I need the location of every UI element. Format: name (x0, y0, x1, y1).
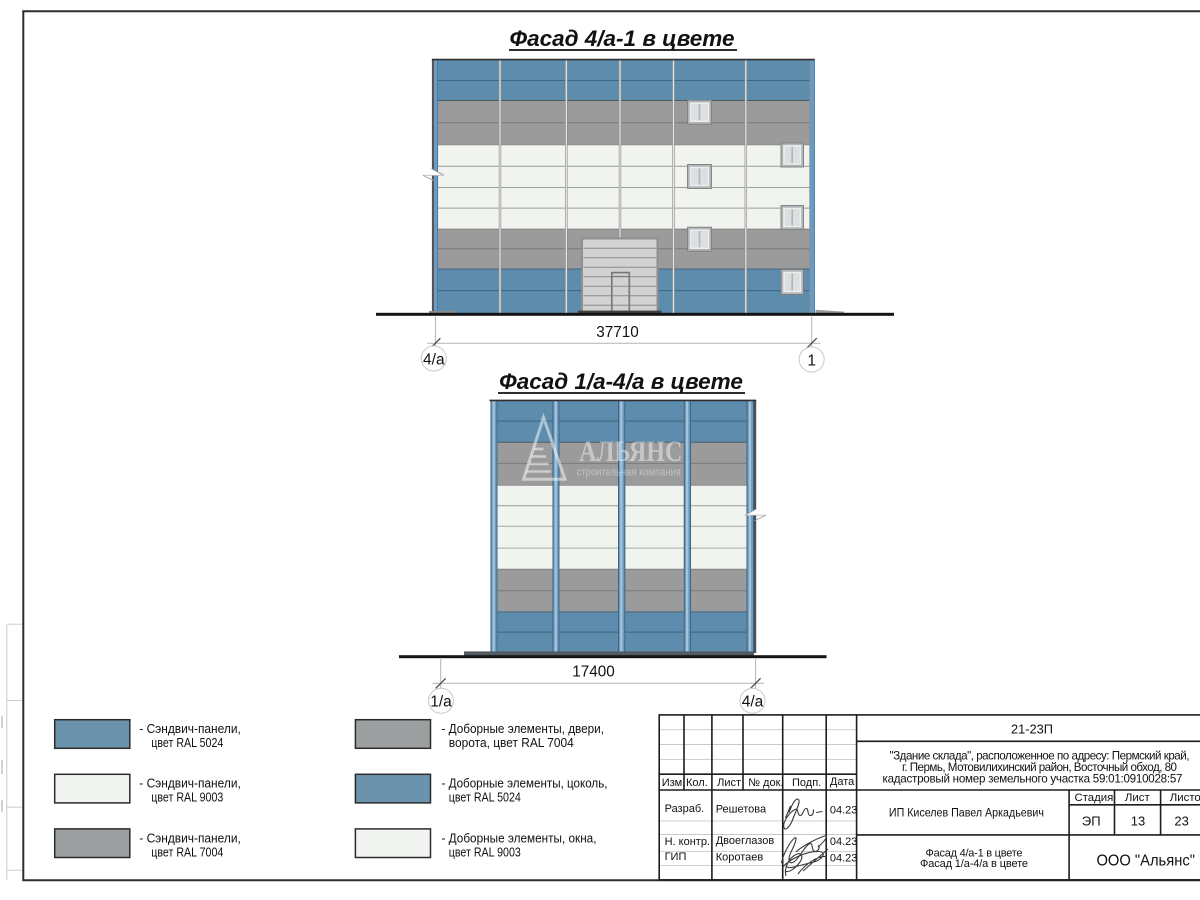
svg-text:цвет RAL 9003: цвет RAL 9003 (151, 790, 223, 805)
svg-text:13: 13 (1131, 813, 1145, 828)
svg-text:Решетова: Решетова (716, 804, 767, 816)
svg-text:цвет RAL 5024: цвет RAL 5024 (449, 790, 521, 805)
svg-text:Подп.: Подп. (792, 777, 821, 789)
svg-text:цвет RAL 5024: цвет RAL 5024 (151, 735, 223, 750)
svg-text:Фасад 1/а-4/а в цвете: Фасад 1/а-4/а в цвете (920, 858, 1028, 870)
svg-text:ГИП: ГИП (665, 851, 687, 863)
svg-text:ИП Киселев Павел Аркадьевич: ИП Киселев Павел Аркадьевич (889, 808, 1044, 820)
svg-text:ЭП: ЭП (1082, 813, 1101, 828)
svg-text:04.23: 04.23 (830, 836, 858, 848)
svg-text:04.23: 04.23 (830, 805, 858, 817)
svg-text:Разраб.: Разраб. (665, 803, 705, 815)
svg-text:Дата: Дата (830, 776, 855, 788)
svg-text:Кол.: Кол. (686, 777, 708, 789)
svg-text:- Доборные элементы, окна,: - Доборные элементы, окна, (442, 830, 597, 845)
svg-text:Стадия: Стадия (1074, 792, 1113, 804)
svg-text:1/а: 1/а (430, 694, 452, 711)
svg-text:Фасад 4/а-1 в цвете: Фасад 4/а-1 в цвете (510, 26, 735, 51)
svg-text:кадастровый номер земельного у: кадастровый номер земельного участка 59:… (883, 773, 1183, 786)
svg-text:Фасад 1/а-4/а в цвете: Фасад 1/а-4/а в цвете (499, 369, 743, 394)
svg-text:4/а: 4/а (742, 694, 764, 711)
svg-text:17400: 17400 (572, 664, 615, 681)
svg-text:- Доборные элементы, цоколь,: - Доборные элементы, цоколь, (442, 776, 608, 791)
svg-text:строительная компания: строительная компания (577, 467, 681, 479)
svg-text:Листов: Листов (1170, 792, 1200, 804)
svg-text:цвет RAL 7004: цвет RAL 7004 (151, 844, 223, 859)
svg-text:Изм.: Изм. (662, 777, 686, 789)
svg-text:Коротаев: Коротаев (716, 851, 764, 863)
svg-text:Н. контр.: Н. контр. (665, 836, 710, 848)
svg-text:37710: 37710 (596, 324, 639, 341)
svg-text:ворота, цвет RAL 7004: ворота, цвет RAL 7004 (449, 735, 574, 750)
svg-text:№ док.: № док. (748, 777, 783, 789)
svg-text:Двоеглазов: Двоеглазов (716, 835, 775, 847)
svg-text:- Сэндвич-панели,: - Сэндвич-панели, (139, 830, 241, 845)
svg-text:1: 1 (807, 352, 816, 369)
svg-text:Лист: Лист (717, 777, 741, 789)
svg-text:АЛЬЯНС: АЛЬЯНС (579, 435, 682, 468)
svg-text:21-23П: 21-23П (1011, 721, 1053, 736)
svg-text:цвет RAL 9003: цвет RAL 9003 (449, 844, 521, 859)
svg-text:- Сэндвич-панели,: - Сэндвич-панели, (139, 721, 241, 736)
svg-text:23: 23 (1174, 813, 1188, 828)
svg-text:04.23: 04.23 (830, 852, 858, 864)
svg-text:- Доборные элементы, двери,: - Доборные элементы, двери, (442, 721, 605, 736)
svg-text:ООО "Альянс": ООО "Альянс" (1096, 852, 1195, 869)
svg-text:- Сэндвич-панели,: - Сэндвич-панели, (139, 776, 241, 791)
svg-text:Лист: Лист (1125, 792, 1151, 804)
svg-text:4/а: 4/а (423, 351, 445, 368)
